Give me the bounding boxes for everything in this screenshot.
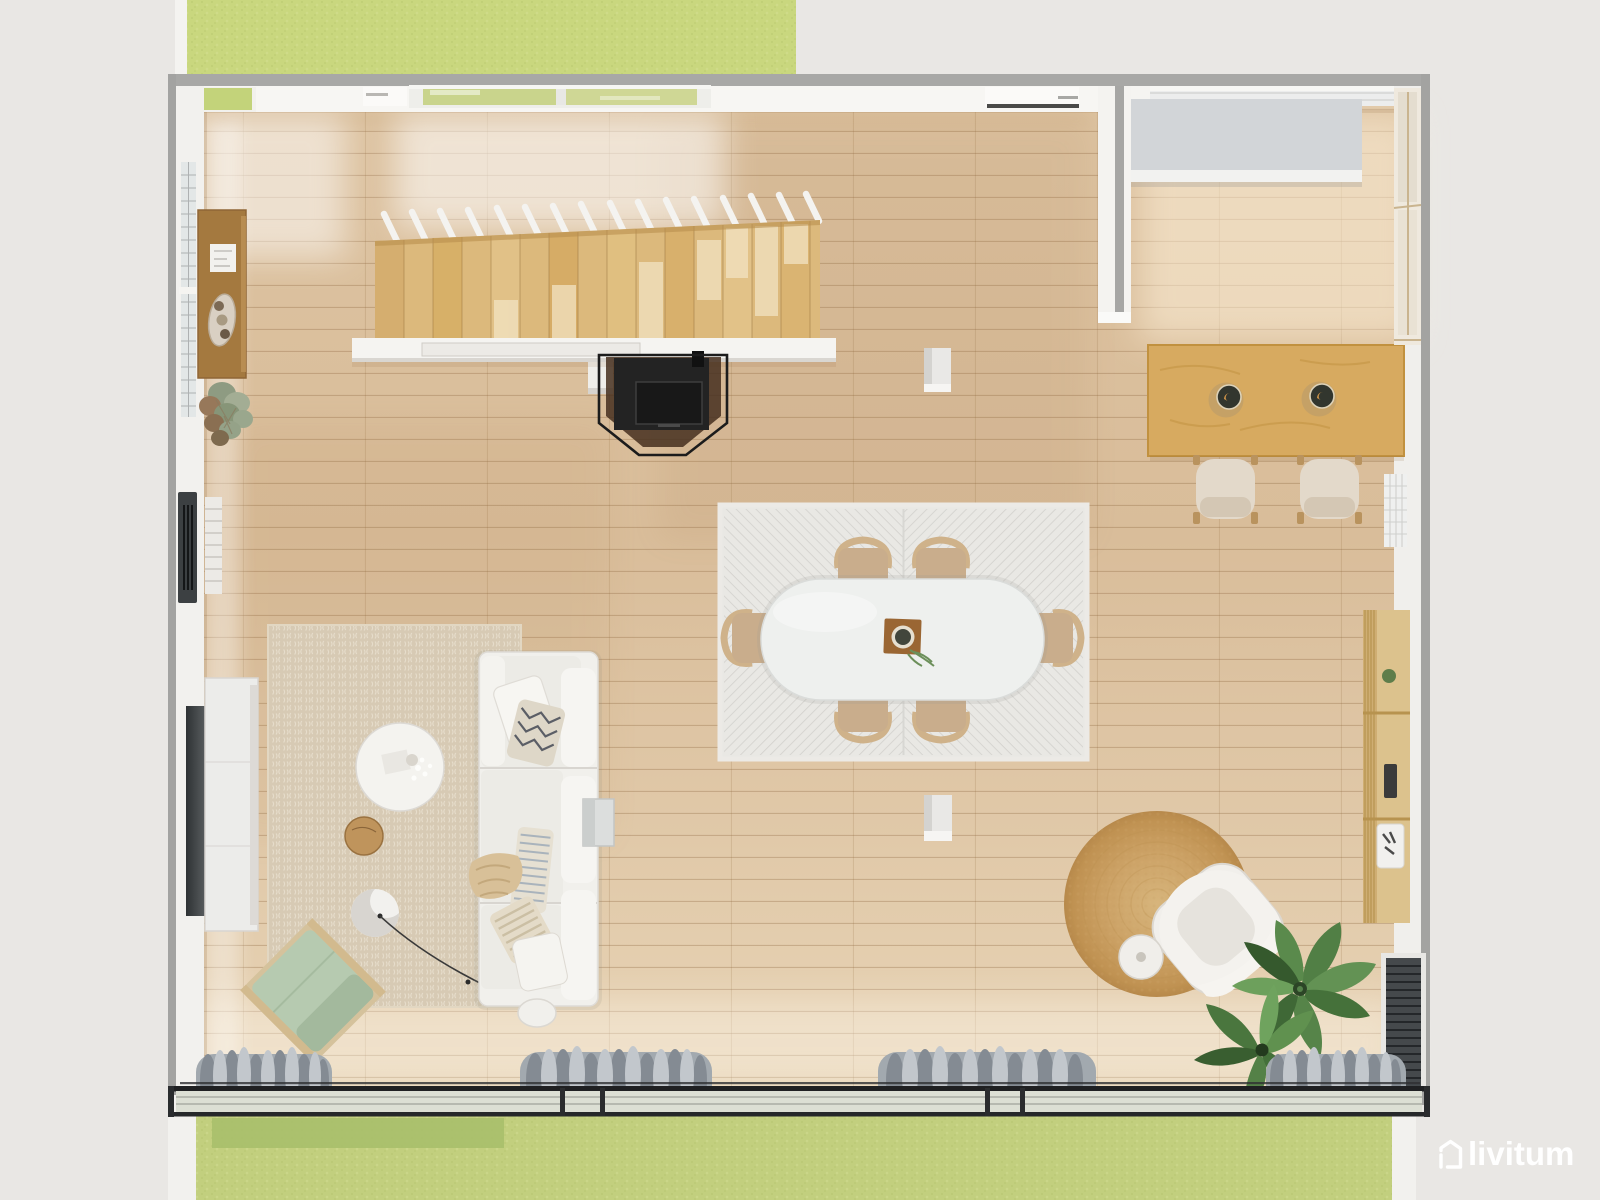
svg-text:livitum: livitum (1468, 1135, 1574, 1172)
